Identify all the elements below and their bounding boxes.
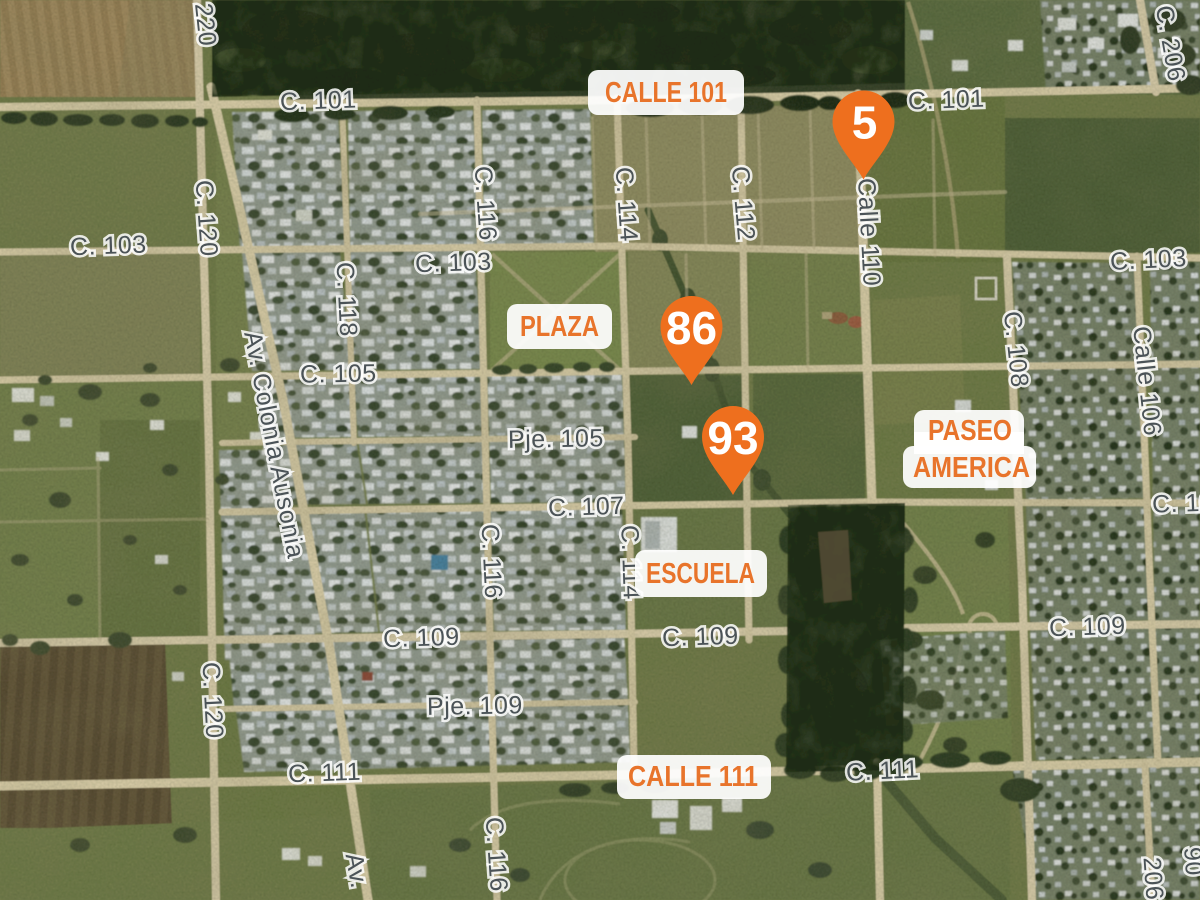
svg-text:C. 114: C. 114 <box>610 166 643 243</box>
svg-text:C. 107: C. 107 <box>548 492 626 523</box>
svg-text:PLAZA: PLAZA <box>520 311 599 343</box>
svg-text:ESCUELA: ESCUELA <box>646 558 755 590</box>
svg-text:90: 90 <box>1178 846 1200 877</box>
svg-text:C. 103: C. 103 <box>415 248 493 279</box>
svg-text:C. 109: C. 109 <box>662 622 740 653</box>
svg-text:C. 103: C. 103 <box>70 231 148 262</box>
svg-text:Pje. 109: Pje. 109 <box>427 691 523 721</box>
svg-text:5: 5 <box>852 97 878 149</box>
svg-text:CALLE 101: CALLE 101 <box>605 77 727 109</box>
svg-text:C. 101: C. 101 <box>280 85 358 116</box>
svg-text:C. 116: C. 116 <box>469 165 502 242</box>
svg-text:PASEO: PASEO <box>928 415 1012 447</box>
svg-text:C. 101: C. 101 <box>908 85 986 116</box>
svg-text:C. 111: C. 111 <box>288 758 362 789</box>
svg-text:C. 105: C. 105 <box>300 359 377 388</box>
svg-text:C. 118: C. 118 <box>330 261 362 337</box>
svg-text:C. 120: C. 120 <box>196 661 228 739</box>
svg-text:CALLE 111: CALLE 111 <box>628 761 758 793</box>
svg-text:Pje. 105: Pje. 105 <box>508 424 604 454</box>
svg-text:C. 103: C. 103 <box>1109 244 1187 276</box>
svg-text:C. 120: C. 120 <box>190 179 223 257</box>
svg-text:206: 206 <box>1138 856 1169 900</box>
svg-text:93: 93 <box>707 412 758 464</box>
svg-text:86: 86 <box>666 302 717 354</box>
svg-text:C. 116: C. 116 <box>475 523 507 599</box>
svg-text:C. 109: C. 109 <box>383 623 461 654</box>
svg-text:C. 111: C. 111 <box>845 755 919 787</box>
svg-text:C. 116: C. 116 <box>480 816 513 893</box>
svg-text:C. 109: C. 109 <box>1049 612 1127 643</box>
svg-text:220: 220 <box>189 2 221 48</box>
svg-text:Calle 110: Calle 110 <box>852 177 886 287</box>
svg-text:AMERICA: AMERICA <box>913 452 1030 484</box>
svg-text:C. 10: C. 10 <box>1152 488 1200 518</box>
